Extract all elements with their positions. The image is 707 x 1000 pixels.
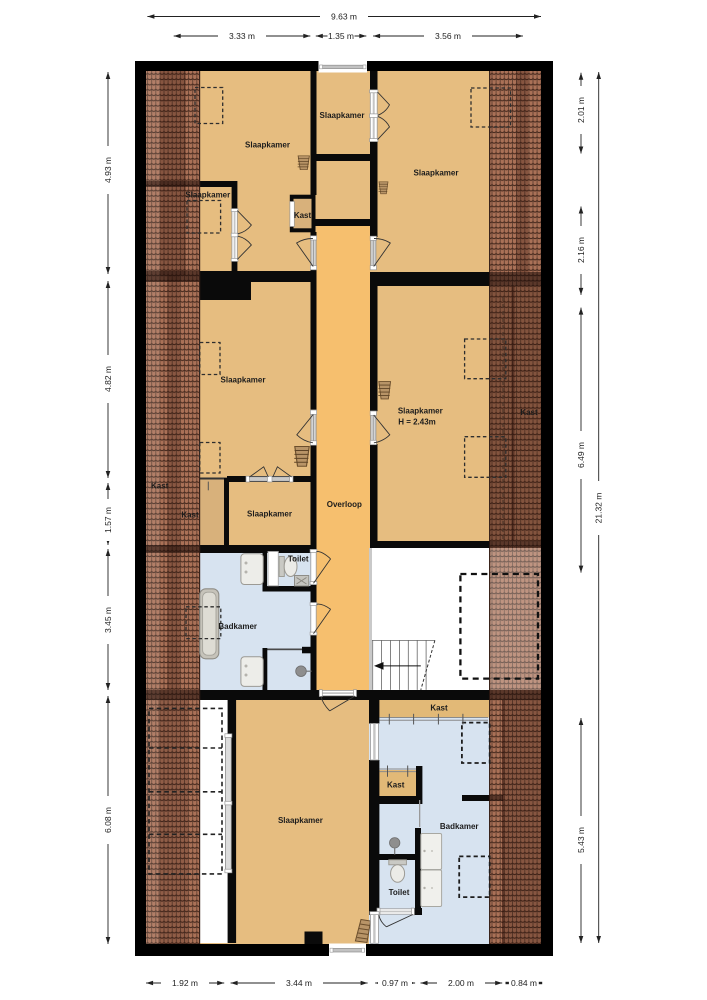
svg-text:4.93 m: 4.93 m <box>103 157 113 183</box>
svg-text:Overloop: Overloop <box>327 500 362 509</box>
svg-text:6.49 m: 6.49 m <box>576 442 586 468</box>
svg-text:9.63 m: 9.63 m <box>331 12 357 22</box>
svg-text:Slaapkamer: Slaapkamer <box>221 376 266 385</box>
svg-text:Kast: Kast <box>294 211 312 220</box>
svg-text:Slaapkamer: Slaapkamer <box>398 407 443 416</box>
svg-text:1.57 m: 1.57 m <box>103 507 113 533</box>
svg-text:Slaapkamer: Slaapkamer <box>245 141 290 150</box>
svg-text:2.01 m: 2.01 m <box>576 97 586 123</box>
svg-text:Toilet: Toilet <box>389 888 410 897</box>
svg-text:6.08 m: 6.08 m <box>103 807 113 833</box>
svg-text:Slaapkamer: Slaapkamer <box>185 190 230 199</box>
svg-text:H = 2.43m: H = 2.43m <box>398 417 436 426</box>
svg-text:Slaapkamer: Slaapkamer <box>320 111 365 120</box>
svg-text:3.44 m: 3.44 m <box>286 978 312 988</box>
svg-text:0.84 m: 0.84 m <box>511 978 537 988</box>
svg-text:Slaapkamer: Slaapkamer <box>278 816 323 825</box>
svg-text:1.35 m: 1.35 m <box>328 31 354 41</box>
svg-text:5.43 m: 5.43 m <box>576 827 586 853</box>
svg-text:21.32 m: 21.32 m <box>594 493 604 524</box>
svg-text:Kast: Kast <box>181 510 199 519</box>
svg-text:Badkamer: Badkamer <box>440 822 479 831</box>
svg-text:Slaapkamer: Slaapkamer <box>247 509 292 518</box>
svg-text:0.97 m: 0.97 m <box>382 978 408 988</box>
svg-text:Toilet: Toilet <box>288 555 309 564</box>
svg-text:Slaapkamer: Slaapkamer <box>414 169 459 178</box>
svg-text:1.92 m: 1.92 m <box>172 978 198 988</box>
svg-text:Kast: Kast <box>151 481 169 490</box>
svg-text:4.82 m: 4.82 m <box>103 366 113 392</box>
svg-text:Badkamer: Badkamer <box>218 622 257 631</box>
svg-text:2.16 m: 2.16 m <box>576 237 586 263</box>
svg-text:Kast: Kast <box>387 781 405 790</box>
svg-text:3.45 m: 3.45 m <box>103 607 113 633</box>
svg-text:Kast: Kast <box>520 408 538 417</box>
svg-text:3.33 m: 3.33 m <box>229 31 255 41</box>
svg-text:2.00 m: 2.00 m <box>448 978 474 988</box>
svg-text:3.56 m: 3.56 m <box>435 31 461 41</box>
svg-text:Kast: Kast <box>430 704 448 713</box>
